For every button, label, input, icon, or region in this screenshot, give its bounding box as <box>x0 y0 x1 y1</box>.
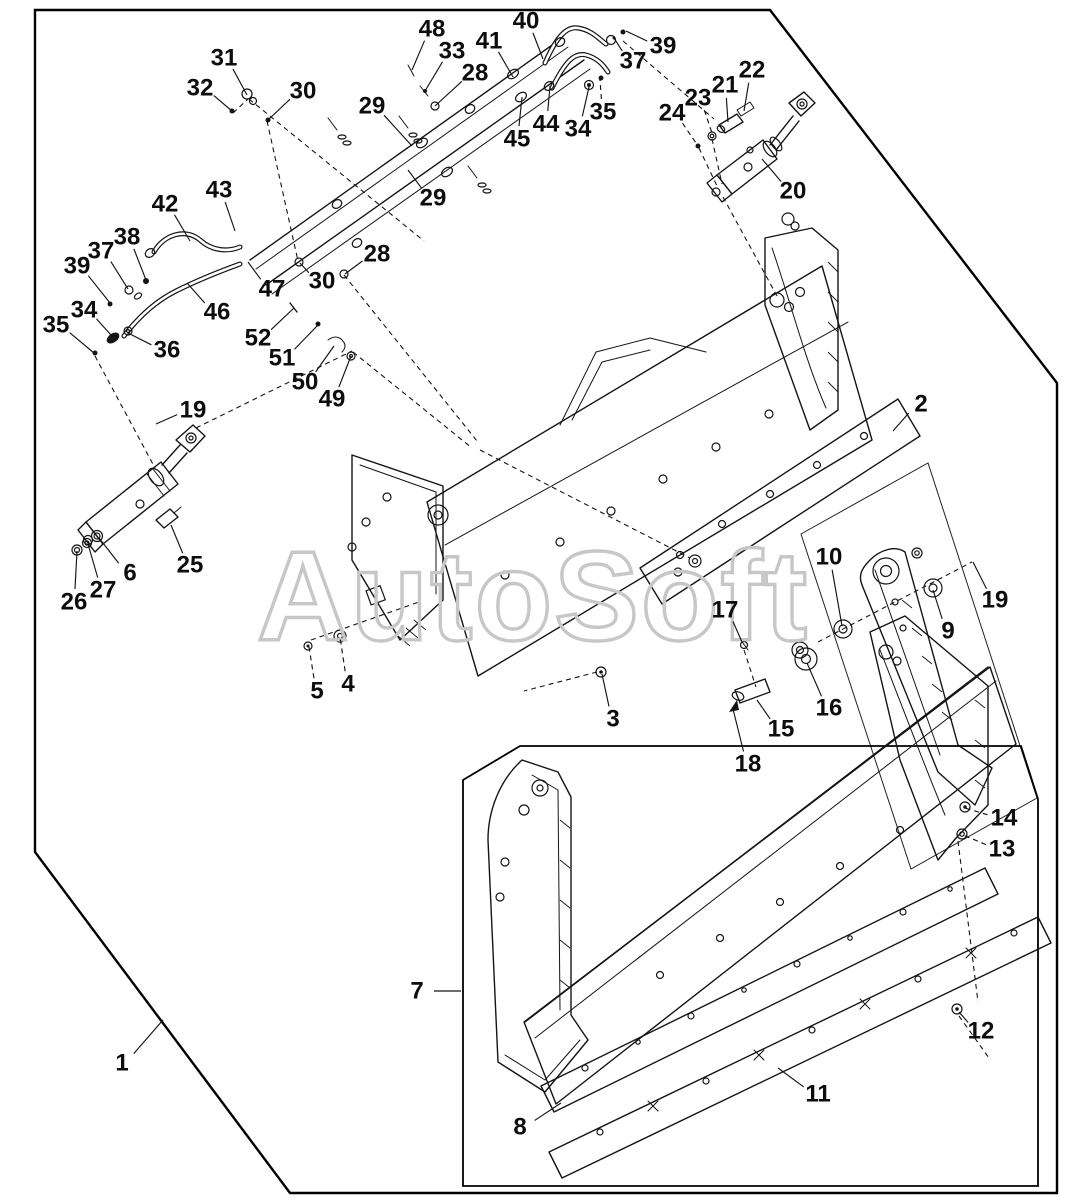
callout-leader-46 <box>187 283 205 303</box>
callout-label-10: 10 <box>816 544 843 571</box>
callout-leader-34 <box>582 87 589 116</box>
callout-leader-3 <box>602 674 609 706</box>
callout-leader-31 <box>233 69 247 95</box>
callout-label-52: 52 <box>245 325 272 352</box>
lower-right-end-plate <box>870 616 988 860</box>
callout-leader-9 <box>933 590 942 619</box>
callout-leader-19 <box>973 562 986 589</box>
callout-label-2: 2 <box>914 391 927 418</box>
lower-left-end-plate <box>488 760 588 1092</box>
callout-leader-8 <box>535 1103 561 1120</box>
callout-leader-26 <box>75 551 77 589</box>
hydraulic-cylinder-19 <box>72 425 205 555</box>
callout-label-13: 13 <box>989 836 1016 863</box>
callout-label-29: 29 <box>420 185 447 212</box>
callout-label-43: 43 <box>206 177 233 204</box>
callout-label-26: 26 <box>61 589 88 616</box>
callout-leader-49 <box>339 356 351 387</box>
callout-label-15: 15 <box>768 716 795 743</box>
callout-label-49: 49 <box>319 386 346 413</box>
callout-label-7: 7 <box>410 978 423 1005</box>
callout-label-25: 25 <box>177 552 204 579</box>
callout-leader-32 <box>214 96 232 111</box>
callout-label-37: 37 <box>620 48 647 75</box>
callout-leader-13 <box>963 835 986 845</box>
callout-label-36: 36 <box>154 337 181 364</box>
callout-label-11: 11 <box>805 1081 830 1108</box>
callout-leader-35 <box>600 80 601 99</box>
callout-label-29: 29 <box>359 93 386 120</box>
callout-label-35: 35 <box>43 312 70 339</box>
callout-label-46: 46 <box>204 299 231 326</box>
callout-leader-6 <box>99 538 119 563</box>
callout-leader-24 <box>683 123 698 146</box>
callout-label-35: 35 <box>590 99 617 126</box>
callout-label-6: 6 <box>123 560 136 587</box>
callout-leader-19 <box>156 415 177 424</box>
callout-label-30: 30 <box>309 268 336 295</box>
callout-leader-25 <box>171 525 183 553</box>
exploded-parts-diagram: AutoSoft 1234567891011121314151617181919… <box>0 0 1066 1200</box>
callout-leader-37 <box>111 262 128 289</box>
callout-label-9: 9 <box>941 618 954 645</box>
callout-leader-35 <box>70 333 94 353</box>
callout-label-4: 4 <box>341 671 355 698</box>
callout-label-38: 38 <box>114 224 141 251</box>
inner-box <box>463 746 1038 1186</box>
callout-label-40: 40 <box>513 8 540 35</box>
callout-label-12: 12 <box>968 1018 995 1045</box>
callout-label-23: 23 <box>685 85 712 112</box>
callout-label-41: 41 <box>476 28 503 55</box>
callout-label-47: 47 <box>259 276 286 303</box>
callout-leader-30 <box>268 99 290 120</box>
callout-label-37: 37 <box>88 238 115 265</box>
callout-label-50: 50 <box>292 369 319 396</box>
callout-label-8: 8 <box>513 1114 526 1141</box>
callout-leader-43 <box>225 202 235 231</box>
callout-label-18: 18 <box>735 751 762 778</box>
callout-leader-48 <box>412 41 425 70</box>
callout-label-28: 28 <box>462 60 489 87</box>
callout-label-5: 5 <box>310 678 323 705</box>
callout-leader-21 <box>726 98 728 122</box>
callout-label-27: 27 <box>90 577 117 604</box>
callout-leader-18 <box>733 709 744 751</box>
callout-leader-33 <box>425 62 442 91</box>
callout-leader-42 <box>175 215 190 241</box>
callout-label-39: 39 <box>64 253 91 280</box>
callout-label-28: 28 <box>364 241 391 268</box>
callout-label-24: 24 <box>659 100 686 127</box>
callout-leader-36 <box>128 333 151 345</box>
callout-label-20: 20 <box>780 178 807 205</box>
callout-label-32: 32 <box>187 75 214 102</box>
callout-leader-22 <box>744 83 749 111</box>
callout-label-39: 39 <box>650 33 677 60</box>
tube-clamp-screws <box>328 116 491 193</box>
callout-label-51: 51 <box>269 345 296 372</box>
diagram-canvas: AutoSoft 1234567891011121314151617181919… <box>0 0 1066 1200</box>
callout-leader-52 <box>271 308 294 330</box>
cutting-edge-8 <box>541 868 998 1112</box>
callout-leader-51 <box>295 325 318 349</box>
callout-leader-10 <box>832 570 842 626</box>
callout-label-30: 30 <box>290 78 317 105</box>
callout-label-1: 1 <box>115 1050 128 1077</box>
callout-leader-38 <box>134 249 146 280</box>
callout-leader-41 <box>498 52 513 77</box>
callout-label-44: 44 <box>533 111 560 138</box>
callout-leader-2 <box>893 413 909 431</box>
callout-leader-39 <box>626 31 647 41</box>
callout-label-3: 3 <box>606 706 619 733</box>
callout-label-19: 19 <box>180 397 207 424</box>
callout-label-45: 45 <box>504 126 531 153</box>
callout-leader-50 <box>316 346 334 372</box>
callout-label-48: 48 <box>419 16 446 43</box>
callout-label-19: 19 <box>982 587 1009 614</box>
callout-label-17: 17 <box>712 597 739 624</box>
callout-leader-16 <box>807 663 822 696</box>
callout-label-34: 34 <box>565 116 592 143</box>
callout-label-34: 34 <box>71 297 98 324</box>
callout-leader-28 <box>435 81 462 106</box>
callout-label-21: 21 <box>712 72 739 99</box>
callout-label-14: 14 <box>991 805 1018 832</box>
callout-label-22: 22 <box>739 57 766 84</box>
callout-leader-28 <box>345 261 363 274</box>
callout-label-31: 31 <box>211 45 238 72</box>
callout-leader-1 <box>134 1020 163 1054</box>
callout-leader-34 <box>96 319 111 335</box>
callout-label-42: 42 <box>152 191 179 218</box>
callout-label-16: 16 <box>816 695 843 722</box>
lower-blade-assembly <box>463 616 1051 1186</box>
cutting-edge-11 <box>549 917 1051 1178</box>
right-end-plate <box>765 213 838 430</box>
callout-leader-11 <box>778 1068 804 1087</box>
callout-leader-29 <box>384 115 412 146</box>
